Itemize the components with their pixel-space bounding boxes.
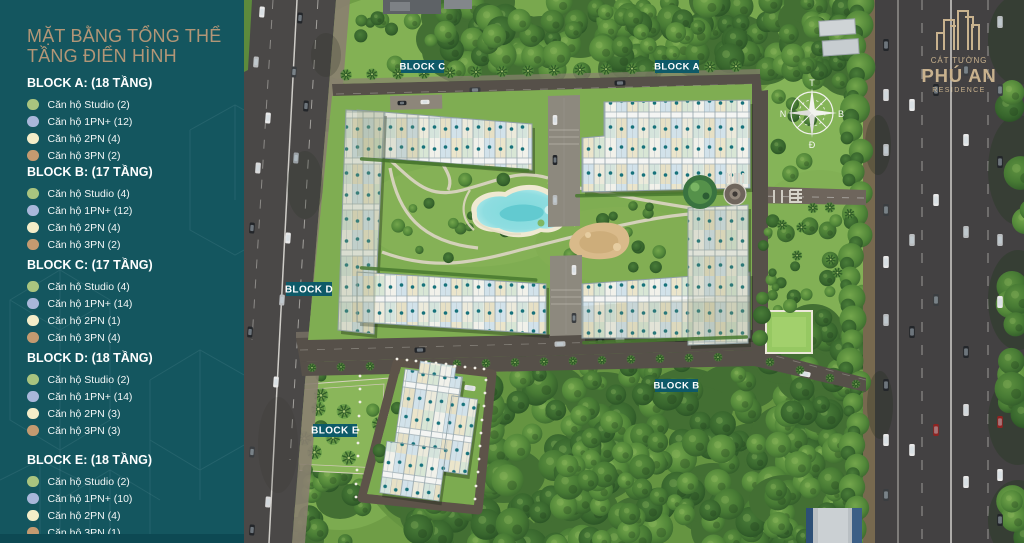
svg-text:BLOCK D: BLOCK D — [285, 285, 333, 296]
svg-text:BLOCK C: BLOCK C — [399, 62, 445, 73]
svg-text:CÁT TƯỜNG: CÁT TƯỜNG — [931, 56, 988, 65]
svg-text:Đ: Đ — [809, 140, 816, 150]
svg-text:N: N — [780, 109, 787, 119]
svg-text:BLOCK B: BLOCK B — [653, 381, 699, 392]
svg-text:PHÚ AN: PHÚ AN — [921, 65, 996, 86]
svg-text:T: T — [809, 78, 815, 88]
svg-text:B: B — [838, 109, 844, 119]
svg-text:BLOCK A: BLOCK A — [654, 62, 700, 73]
svg-text:BLOCK E: BLOCK E — [311, 426, 359, 437]
svg-text:RESIDENCE: RESIDENCE — [932, 87, 985, 94]
